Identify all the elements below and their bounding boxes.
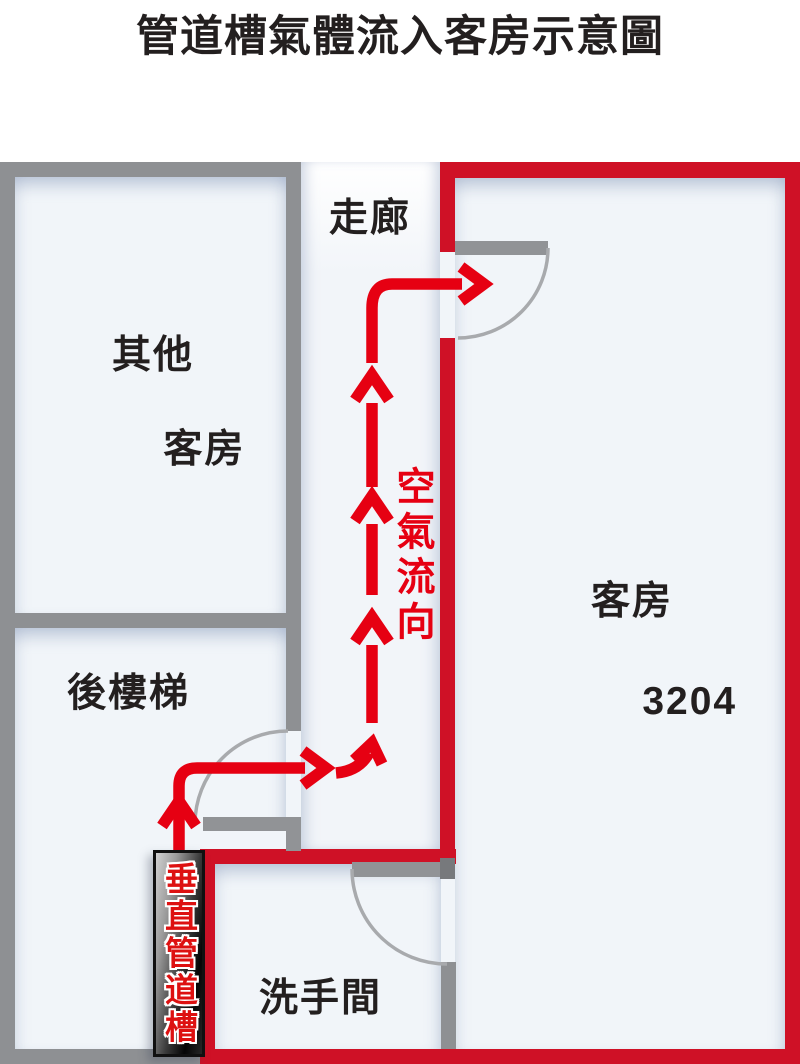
door-leaf-stairs (203, 817, 290, 831)
corridor-label: 走廊 (329, 196, 411, 243)
wall-top-left (0, 162, 301, 177)
room-3204-label-line2: 3204 (642, 680, 737, 723)
other-guestrooms-label-line2: 客房 (163, 428, 245, 471)
back-stairs-label: 後樓梯 (67, 671, 190, 718)
vertical-duct-label: 垂直管道槽 (163, 861, 196, 1046)
washroom-label: 洗手間 (259, 976, 382, 1023)
room3204-door-opening (440, 251, 455, 338)
room-3204-label: 客房 3204 (591, 577, 737, 727)
door-leaf-room3204 (455, 241, 548, 255)
wall-corridor-left (286, 162, 301, 731)
redwall-bottom (200, 1049, 800, 1064)
door-hinge-washroom (440, 858, 455, 879)
vertical-duct-box: 垂直管道槽 (153, 850, 205, 1057)
wall-divider (0, 613, 301, 628)
redwall-3204-top (440, 162, 800, 178)
redwall-3204-left-upper (440, 162, 455, 252)
washroom-door-opening (441, 878, 455, 962)
door-stub-stairs (286, 817, 301, 851)
door-leaf-washroom (352, 862, 447, 877)
room-3204-label-line1: 客房 (591, 580, 673, 623)
other-guestrooms-label-line1: 其他 (112, 334, 194, 377)
diagram-title: 管道槽氣體流入客房示意圖 (0, 2, 800, 64)
redwall-3204-left-lower (440, 338, 455, 857)
air-flow-label: 空氣流向 (393, 466, 432, 646)
floor-plan-diagram: 管道槽氣體流入客房示意圖 (0, 0, 800, 1064)
redwall-3204-right (785, 162, 800, 1064)
wall-washroom-right (441, 962, 456, 1050)
other-guestrooms-label: 其他 客房 (112, 332, 245, 473)
